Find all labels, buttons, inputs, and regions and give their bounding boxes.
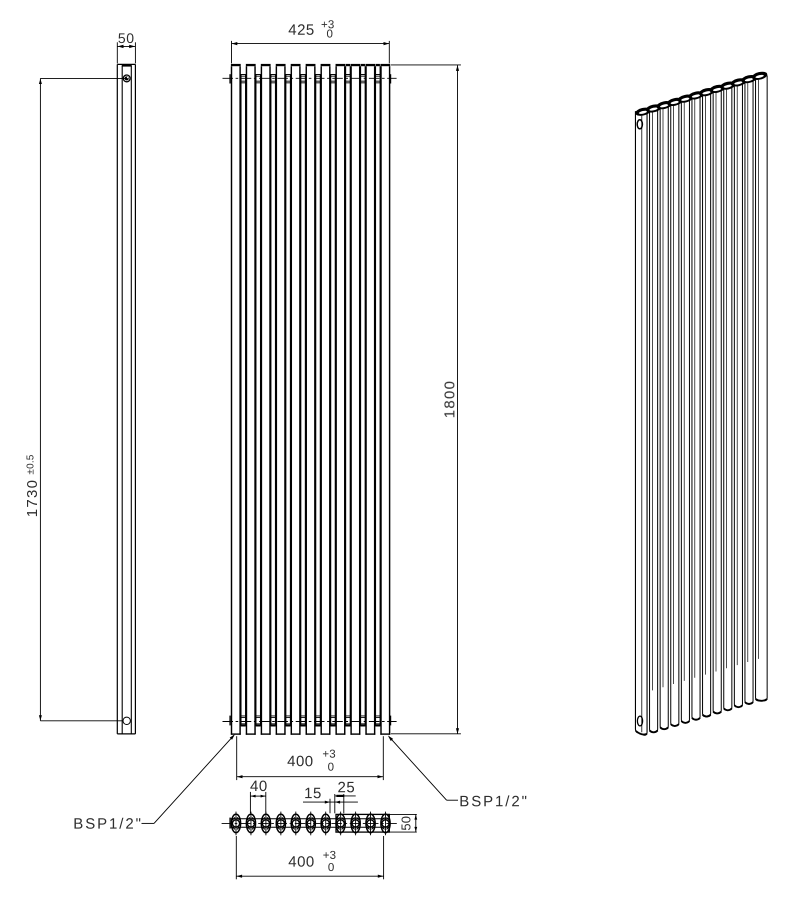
svg-text:1800: 1800 (441, 380, 458, 419)
svg-text:425: 425 (288, 22, 315, 39)
svg-text:50: 50 (118, 30, 135, 46)
svg-text:40: 40 (250, 778, 268, 795)
svg-text:0: 0 (328, 762, 335, 774)
svg-text:400: 400 (287, 753, 314, 770)
svg-text:400: 400 (288, 854, 315, 871)
svg-text:BSP1/2": BSP1/2" (459, 793, 529, 810)
svg-text:15: 15 (304, 785, 322, 802)
svg-text:+3: +3 (322, 749, 336, 761)
svg-text:0: 0 (328, 862, 335, 874)
svg-text:BSP1/2": BSP1/2" (73, 816, 143, 833)
svg-text:+3: +3 (323, 850, 337, 862)
svg-text:50: 50 (398, 816, 413, 831)
svg-text:±0.5: ±0.5 (26, 454, 37, 474)
svg-text:0: 0 (326, 29, 333, 41)
svg-text:25: 25 (338, 779, 356, 796)
svg-text:1730: 1730 (24, 479, 41, 518)
